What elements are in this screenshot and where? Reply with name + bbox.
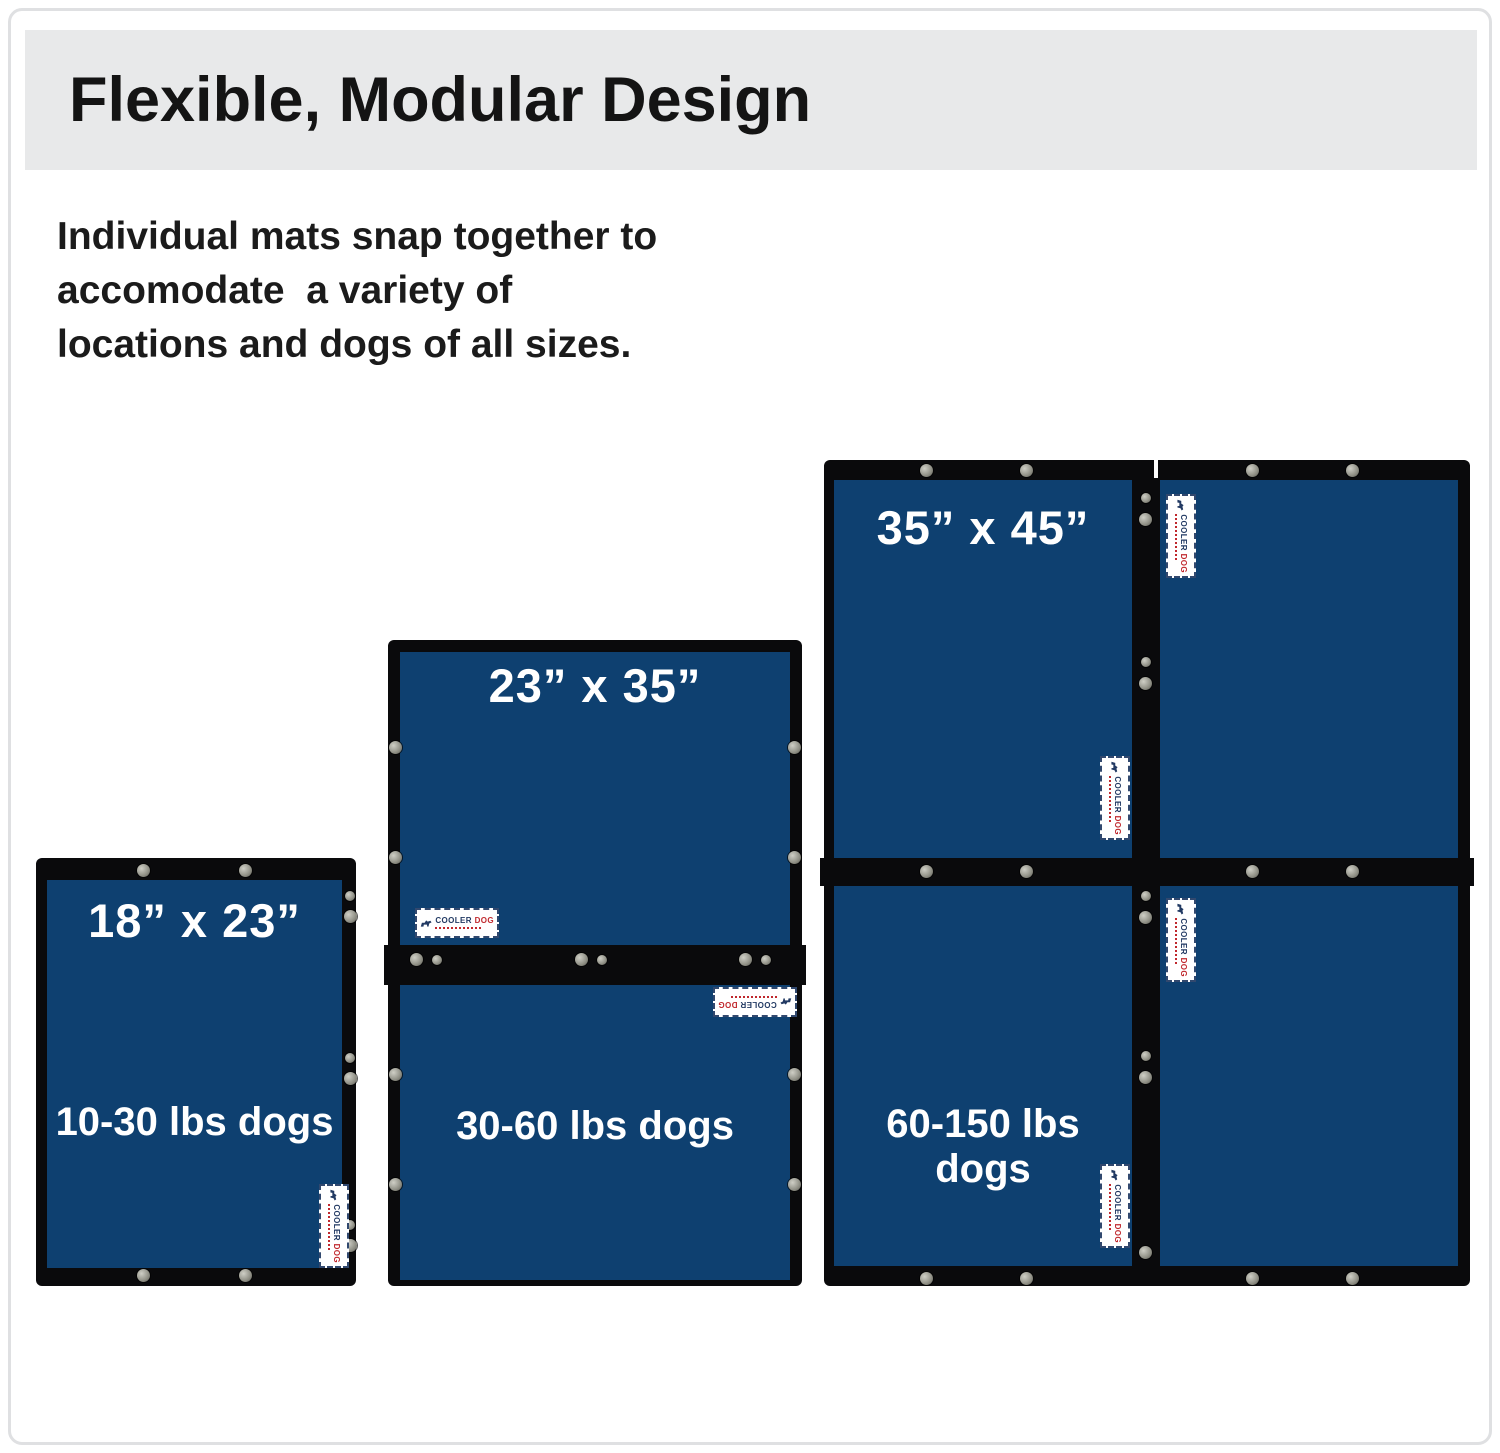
snap-fastener <box>1020 1272 1033 1285</box>
brand-name-cooler: COOLER <box>332 1204 341 1241</box>
snap-fastener <box>345 1053 355 1063</box>
snap-fastener <box>788 1178 801 1191</box>
brand-tag: COOLER DOG <box>1100 1164 1130 1248</box>
snap-fastener <box>920 464 933 477</box>
snap-fastener <box>739 953 752 966</box>
snap-fastener <box>1020 464 1033 477</box>
snap-fastener <box>389 1178 402 1191</box>
snap-fastener <box>1139 677 1152 690</box>
mat-group-medium: 23” x 35” 30-60 lbs dogs COOLER DOG <box>388 640 802 1286</box>
weight-label: 30-60 lbs dogs <box>400 1104 790 1149</box>
snap-fastener <box>239 864 252 877</box>
snap-fastener <box>1346 1272 1359 1285</box>
dog-icon <box>1110 1169 1121 1181</box>
brand-tag: COOLER DOG <box>1100 756 1130 840</box>
snap-fastener <box>788 741 801 754</box>
snap-fastener <box>920 865 933 878</box>
size-label: 35” x 45” <box>834 500 1132 555</box>
brand-tag: COOLER DOG <box>713 987 797 1017</box>
snap-fastener <box>1246 464 1259 477</box>
dog-icon <box>1176 903 1187 915</box>
snap-fastener <box>389 1068 402 1081</box>
snap-fastener <box>137 864 150 877</box>
dog-icon <box>1110 761 1121 773</box>
snap-fastener <box>1139 1246 1152 1259</box>
snap-fastener <box>1246 865 1259 878</box>
snap-fastener <box>239 1269 252 1282</box>
snap-fastener <box>1020 865 1033 878</box>
snap-fastener <box>344 1072 357 1085</box>
dog-icon <box>420 918 432 929</box>
brand-name-dog: DOG <box>332 1244 341 1263</box>
weight-label: 10-30 lbs dogs <box>47 1100 342 1145</box>
dog-icon <box>780 997 792 1008</box>
tag-dotted-line <box>1175 918 1177 964</box>
snap-fastener <box>1141 1051 1151 1061</box>
snap-fastener <box>1346 865 1359 878</box>
snap-fastener <box>788 1068 801 1081</box>
mat-group-small: 18” x 23” 10-30 lbs dogs COOLER DOG <box>36 858 356 1286</box>
mat-panel <box>834 886 1132 1266</box>
dog-icon <box>329 1189 340 1201</box>
brand-tag: COOLER DOG <box>319 1184 349 1268</box>
snap-fastener <box>1141 657 1151 667</box>
brand-tag: COOLER DOG <box>1166 494 1196 578</box>
snap-fastener <box>597 955 607 965</box>
tag-dotted-line <box>435 927 481 929</box>
brand-tag: COOLER DOG <box>1166 898 1196 982</box>
snap-fastener <box>410 953 423 966</box>
snap-fastener <box>1141 493 1151 503</box>
page-title: Flexible, Modular Design <box>69 64 811 136</box>
snap-fastener <box>389 851 402 864</box>
snap-fastener <box>432 955 442 965</box>
snap-fastener <box>1246 1272 1259 1285</box>
snap-fastener <box>345 891 355 901</box>
tag-dotted-line <box>328 1204 330 1250</box>
snap-fastener <box>1346 464 1359 477</box>
brand-tag: COOLER DOG <box>415 908 499 938</box>
intro-line-1: Individual mats snap together to <box>57 210 657 264</box>
intro-line-3: locations and dogs of all sizes. <box>57 318 657 372</box>
snap-fastener <box>575 953 588 966</box>
snap-fastener <box>920 1272 933 1285</box>
snap-fastener <box>761 955 771 965</box>
frame-notch <box>1154 460 1158 478</box>
tag-dotted-line <box>1109 1184 1111 1230</box>
size-label: 23” x 35” <box>400 658 790 713</box>
snap-fastener <box>1139 1071 1152 1084</box>
snap-fastener <box>1139 513 1152 526</box>
mat-group-large: 35” x 45” 60-150 lbs dogs <box>824 460 1470 1286</box>
weight-label: 60-150 lbs dogs <box>834 1102 1132 1192</box>
intro-line-2: accomodate a variety of <box>57 264 657 318</box>
tag-dotted-line <box>1175 514 1177 560</box>
tag-dotted-line <box>1109 776 1111 822</box>
mat-panel <box>1160 480 1458 858</box>
snap-fastener <box>137 1269 150 1282</box>
snap-fastener <box>1141 891 1151 901</box>
snap-fastener <box>344 910 357 923</box>
mat-panel <box>1160 886 1458 1266</box>
snap-fastener <box>389 741 402 754</box>
snap-junction-bar <box>820 858 1474 886</box>
snap-fastener <box>1139 911 1152 924</box>
dog-icon <box>1176 499 1187 511</box>
header-banner: Flexible, Modular Design <box>25 30 1477 170</box>
snap-fastener <box>788 851 801 864</box>
tag-dotted-line <box>731 996 777 998</box>
product-infographic: Flexible, Modular Design Individual mats… <box>0 0 1500 1453</box>
intro-text: Individual mats snap together to accomod… <box>57 210 657 372</box>
size-label: 18” x 23” <box>47 893 342 948</box>
